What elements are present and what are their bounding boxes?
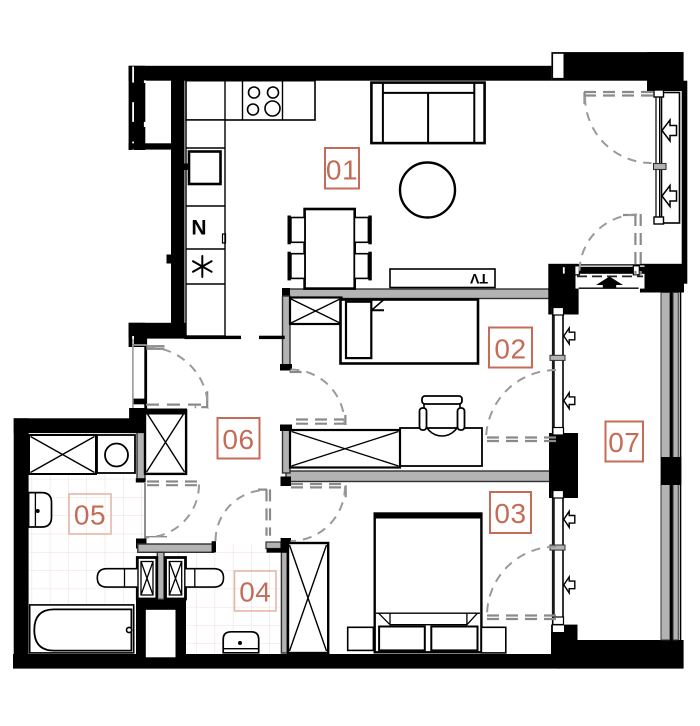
svg-text:TV: TV xyxy=(469,271,488,287)
svg-text:03: 03 xyxy=(494,498,526,529)
svg-text:05: 05 xyxy=(74,500,106,531)
svg-text:01: 01 xyxy=(326,155,358,186)
svg-text:02: 02 xyxy=(494,334,526,365)
svg-text:04: 04 xyxy=(239,577,271,608)
svg-text:N: N xyxy=(191,217,206,240)
svg-text:07: 07 xyxy=(608,427,640,458)
svg-text:06: 06 xyxy=(222,424,254,455)
